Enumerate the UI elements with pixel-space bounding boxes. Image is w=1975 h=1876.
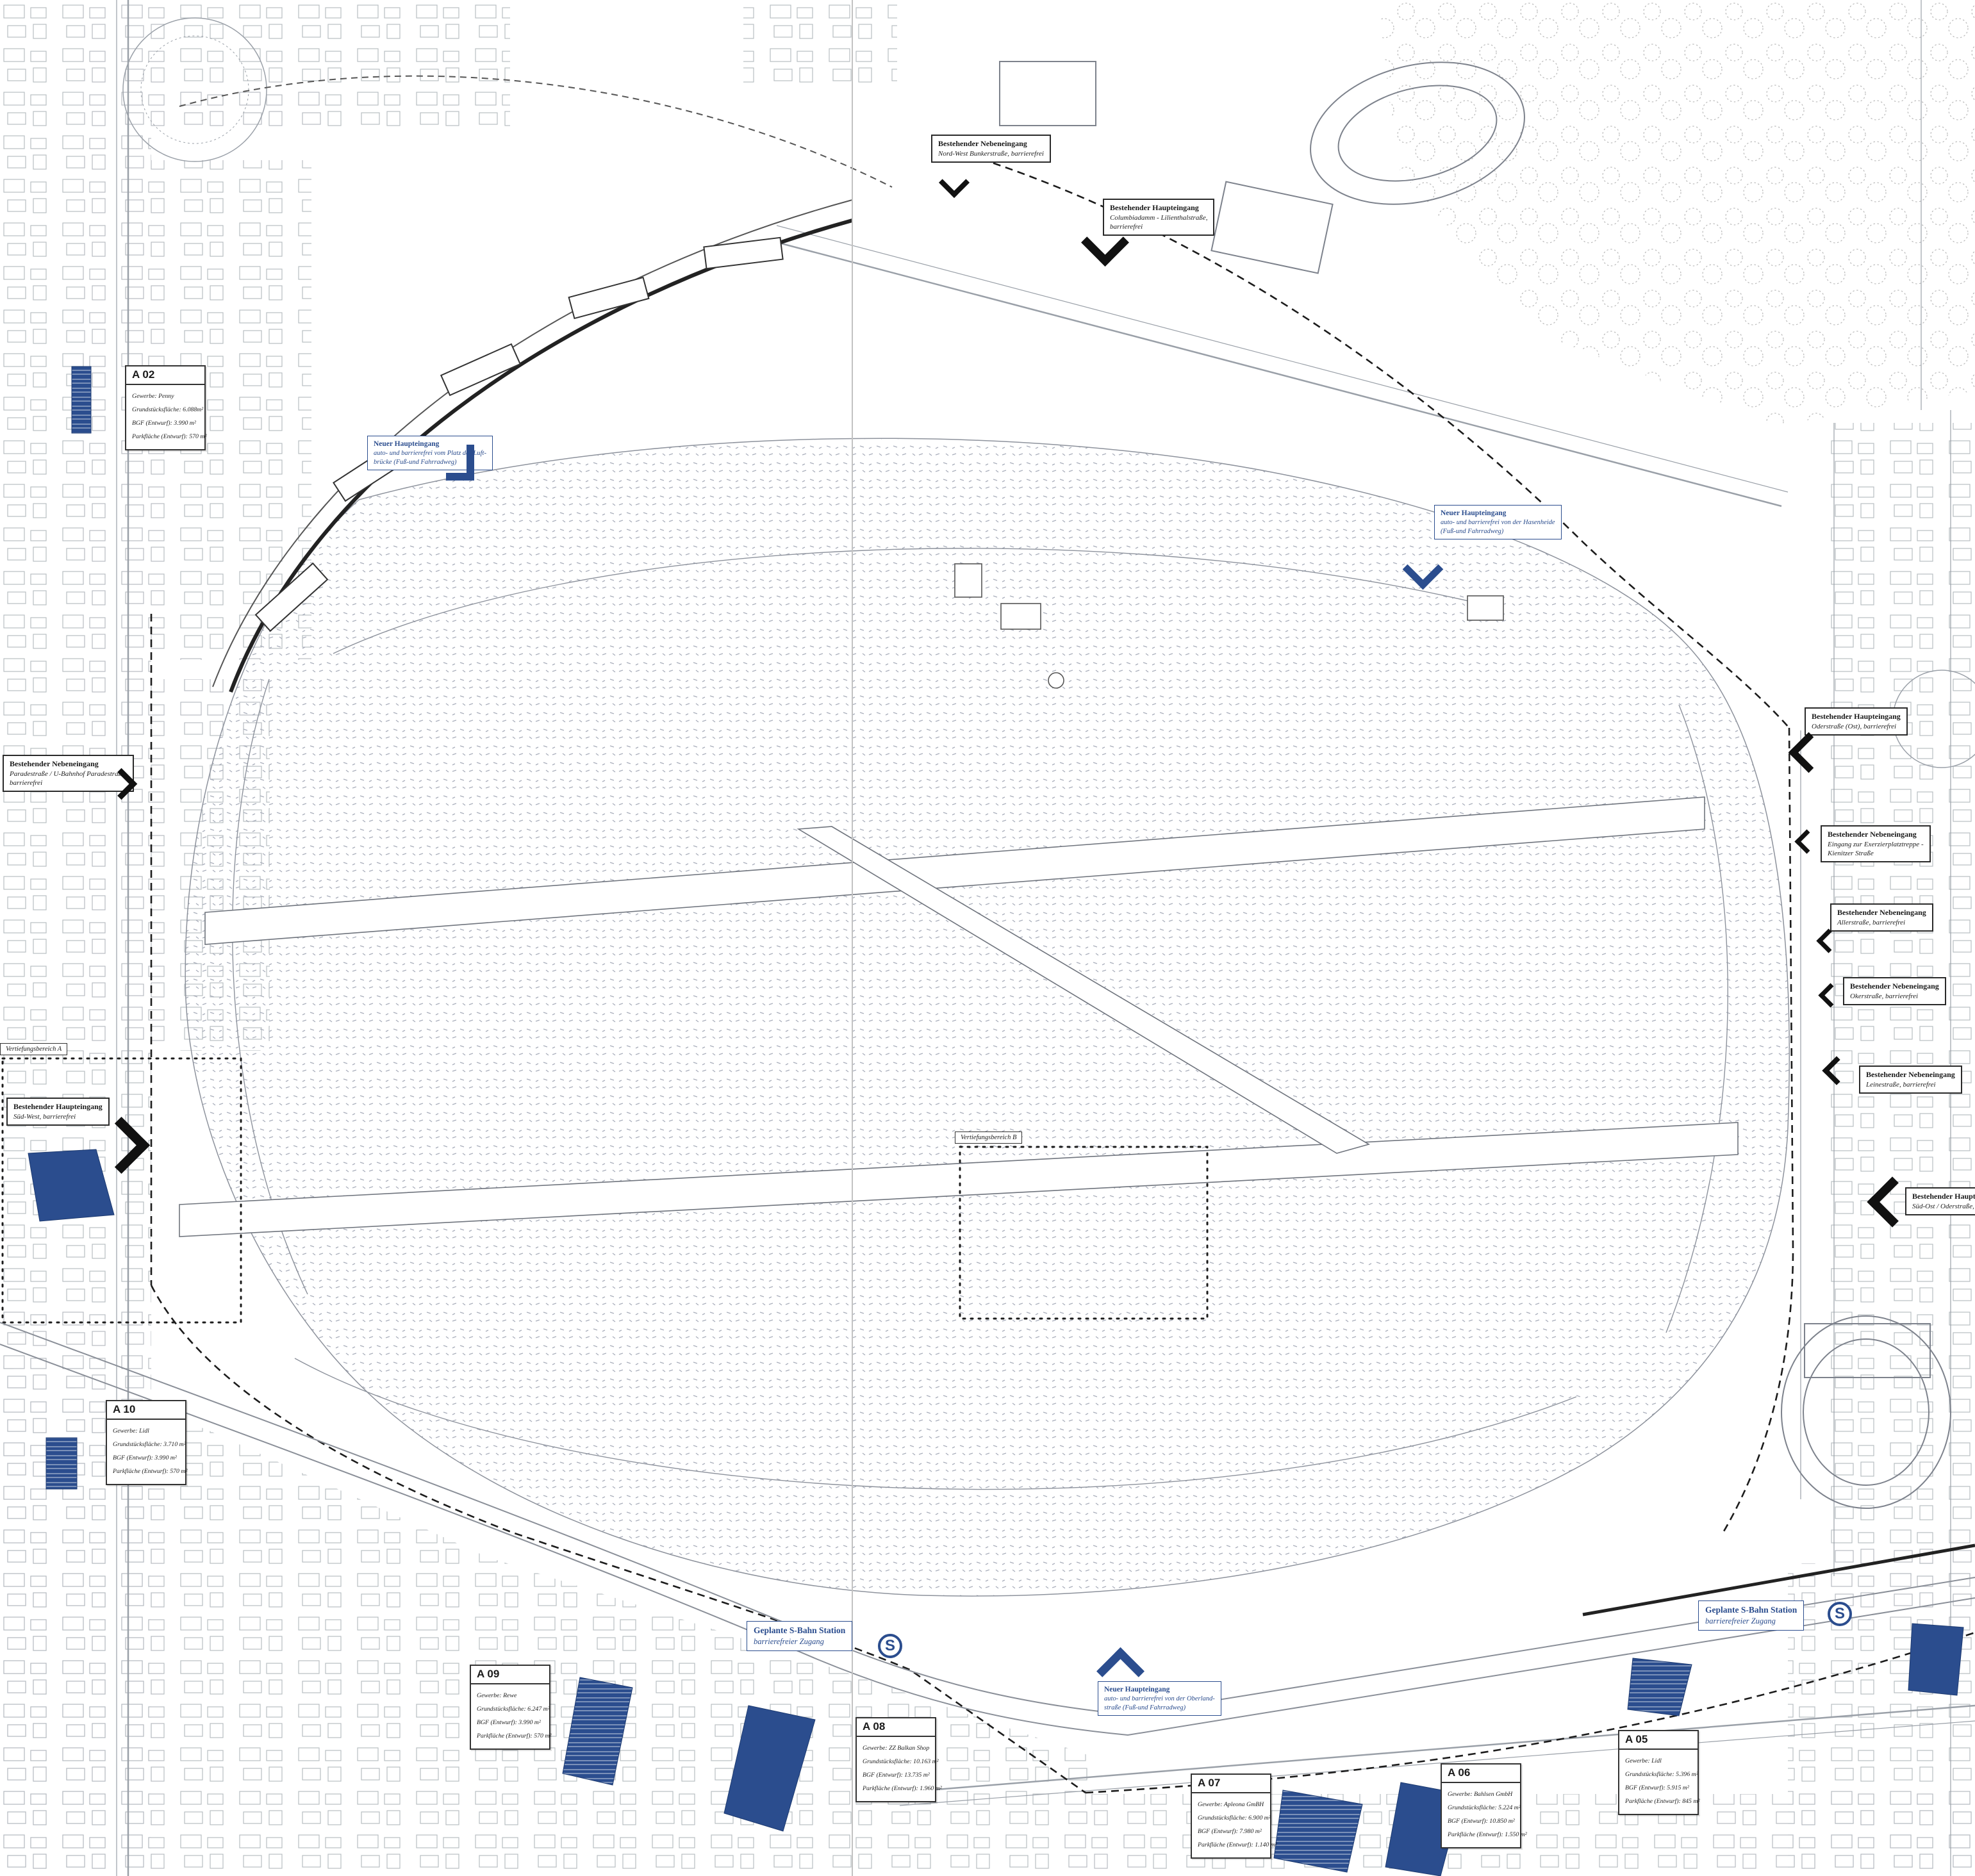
parcel-box-a06: A 06 Gewerbe: Bahlsen GmbH Grundstücksfl… (1441, 1763, 1521, 1848)
parcel-field: BGF (Entwurf): 13.735 m² (863, 1768, 929, 1782)
sbahn-station-label-east: Geplante S-Bahn Station barrierefreier Z… (1698, 1600, 1804, 1631)
sbahn-station-label-west: Geplante S-Bahn Station barrierefreier Z… (747, 1621, 852, 1651)
parcel-field: Parkfläche (Entwurf): 1.960 m² (863, 1782, 929, 1795)
parcel-id: A 07 (1192, 1775, 1270, 1793)
parcel-id: A 09 (471, 1666, 549, 1684)
parcel-field: BGF (Entwurf): 3.990 m² (113, 1451, 179, 1465)
entrance-label-columbiadamm: Bestehender Haupteingang Columbiadamm - … (1103, 199, 1214, 236)
parcel-field: Parkfläche (Entwurf): 570 m² (132, 430, 199, 443)
parcel-field: BGF (Entwurf): 7.980 m² (1198, 1825, 1264, 1838)
parcel-field: Gewerbe: Apleona GmBH (1198, 1798, 1264, 1811)
parcel-field: Grundstücksfläche: 6.900 m² (1198, 1811, 1264, 1825)
parcel-id: A 02 (126, 366, 204, 385)
parcel-field: Gewerbe: Lidl (1625, 1754, 1692, 1768)
parcel-box-a08: A 08 Gewerbe: ZZ Balkan Shop Grundstücks… (855, 1717, 936, 1802)
parcel-box-a09: A 09 Gewerbe: Rewe Grundstücksfläche: 6.… (470, 1665, 550, 1750)
parcel-field: BGF (Entwurf): 10.850 m² (1448, 1814, 1514, 1828)
sbahn-icon: S (878, 1634, 902, 1658)
study-area-label-b: Vertiefungsbereich B (955, 1131, 1022, 1144)
new-entrance-marker-luftbruecke-icon (446, 445, 474, 481)
parcel-box-a02: A 02 Gewerbe: Penny Grundstücksfläche: 6… (125, 365, 206, 450)
entrance-label-suedwest: Bestehender Haupteingang Süd-West, barri… (6, 1098, 110, 1126)
parcel-box-a10: A 10 Gewerbe: Lidl Grundstücksfläche: 3.… (106, 1400, 186, 1485)
entrance-label-exerzierplatztreppe: Bestehender Nebeneingang Eingang zur Exe… (1821, 825, 1931, 862)
parcel-field: Grundstücksfläche: 3.710 m² (113, 1438, 179, 1451)
entrance-label-leinestrasse: Bestehender Nebeneingang Leinestraße, ba… (1859, 1066, 1962, 1094)
parcel-field: Parkfläche (Entwurf): 1.550 m² (1448, 1828, 1514, 1841)
parcel-id: A 10 (107, 1401, 185, 1420)
parcel-field: Grundstücksfläche: 6.088m² (132, 403, 199, 416)
entrance-label-nordwest-bunkerstrasse: Bestehender Nebeneingang Nord-West Bunke… (931, 135, 1051, 163)
parcel-field: Grundstücksfläche: 5.224 m² (1448, 1801, 1514, 1814)
parcel-box-a05: A 05 Gewerbe: Lidl Grundstücksfläche: 5.… (1618, 1730, 1699, 1815)
parcel-field: Gewerbe: ZZ Balkan Shop (863, 1741, 929, 1755)
parcel-id: A 06 (1442, 1765, 1520, 1783)
parcel-box-a07: A 07 Gewerbe: Apleona GmBH Grundstücksfl… (1191, 1773, 1271, 1859)
parcel-id: A 08 (857, 1718, 935, 1737)
parcel-field: Gewerbe: Rewe (477, 1689, 543, 1702)
parcel-field: Grundstücksfläche: 6.247 m² (477, 1702, 543, 1716)
entrance-label-oderstrasse-ost: Bestehender Haupteingang Oderstraße (Ost… (1805, 707, 1908, 736)
site-plan-map: A 02 Gewerbe: Penny Grundstücksfläche: 6… (0, 0, 1975, 1876)
parcel-field: Grundstücksfläche: 10.163 m² (863, 1755, 929, 1768)
parcel-field: Parkfläche (Entwurf): 570 m² (477, 1729, 543, 1743)
study-area-label-a: Vertiefungsbereich A (0, 1043, 67, 1055)
parcel-id: A 05 (1619, 1731, 1698, 1750)
airfield-meadow (185, 438, 1789, 1596)
parcel-field: Parkfläche (Entwurf): 1.140 m² (1198, 1838, 1264, 1852)
parcel-field: Grundstücksfläche: 5.396 m² (1625, 1768, 1692, 1781)
entrance-label-allerstrasse: Bestehender Nebeneingang Allerstraße, ba… (1830, 903, 1933, 932)
parcel-field: Parkfläche (Entwurf): 570 m² (113, 1465, 179, 1478)
new-entrance-label-hasenheide: Neuer Haupteingang auto- und barrierefre… (1434, 505, 1562, 539)
parcel-field: Parkfläche (Entwurf): 845 m² (1625, 1795, 1692, 1808)
parcel-field: BGF (Entwurf): 3.990 m² (477, 1716, 543, 1729)
parcel-field: Gewerbe: Lidl (113, 1424, 179, 1438)
parcel-field: BGF (Entwurf): 5.915 m² (1625, 1781, 1692, 1795)
parcel-field: BGF (Entwurf): 3.990 m² (132, 416, 199, 430)
parcel-field: Gewerbe: Bahlsen GmbH (1448, 1788, 1514, 1801)
parcel-field: Gewerbe: Penny (132, 390, 199, 403)
base-map (0, 0, 1975, 1876)
entrance-label-okerstrasse: Bestehender Nebeneingang Okerstraße, bar… (1843, 977, 1946, 1005)
sbahn-icon: S (1828, 1602, 1852, 1626)
park-hasenheide (1378, 0, 1975, 426)
